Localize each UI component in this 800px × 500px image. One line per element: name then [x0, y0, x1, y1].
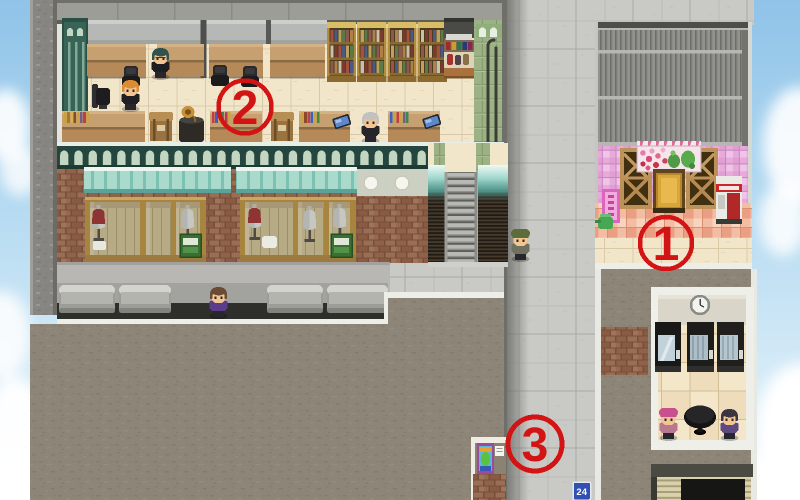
svg-text:24: 24 — [576, 487, 587, 498]
svg-text:3: 3 — [522, 419, 549, 472]
svg-text:1: 1 — [653, 218, 680, 271]
svg-text:2: 2 — [232, 82, 259, 135]
